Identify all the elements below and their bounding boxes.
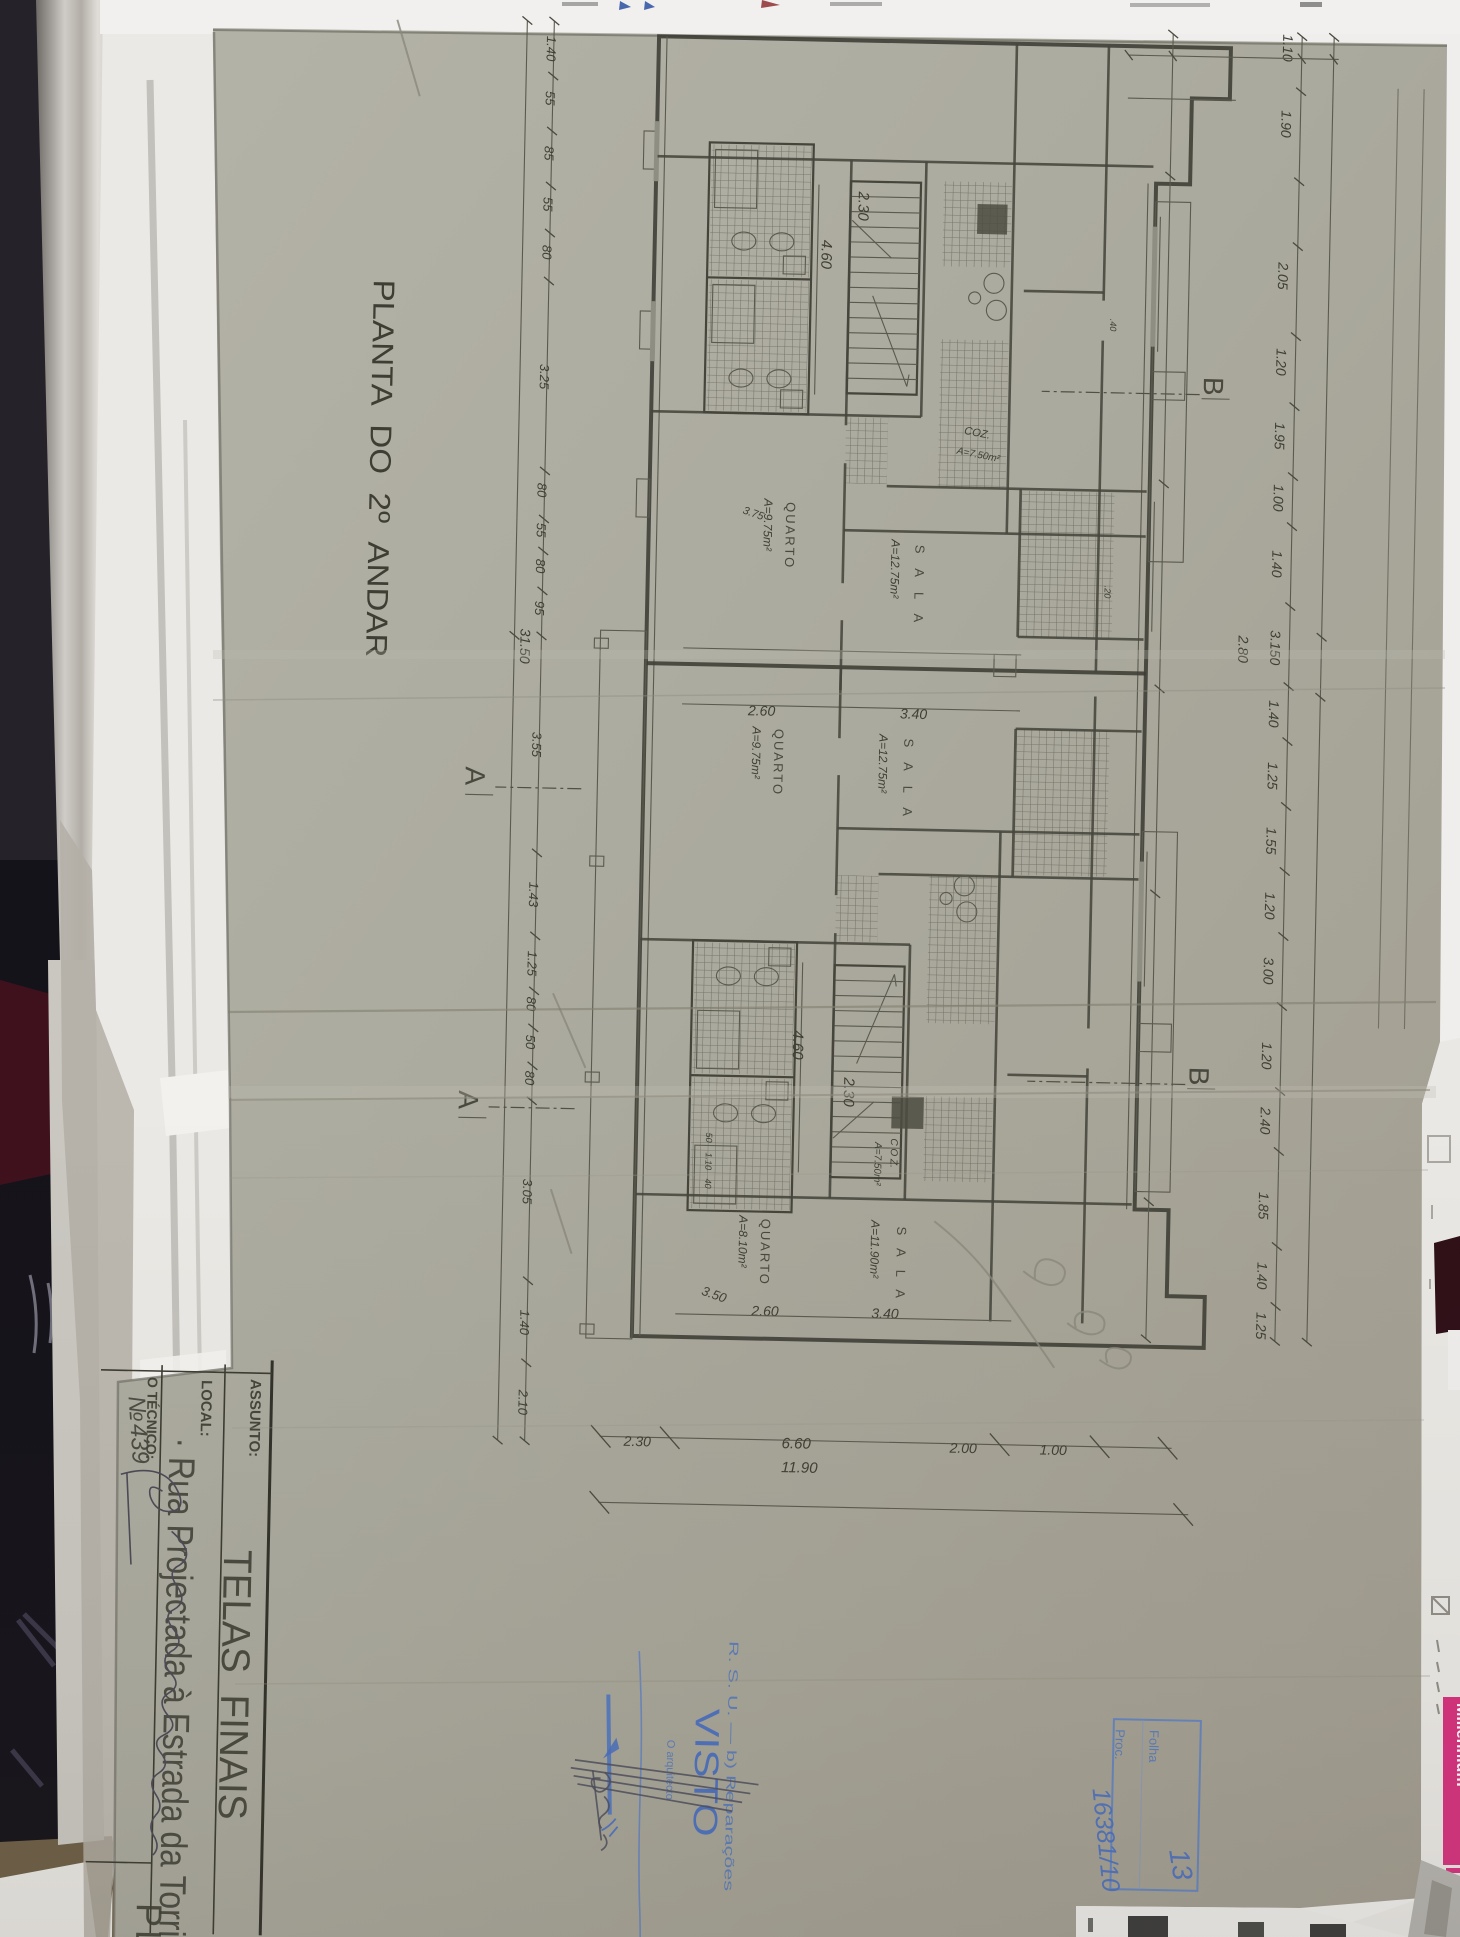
svg-text:2.60: 2.60 <box>747 702 776 719</box>
svg-text:S A L A: S A L A <box>911 545 928 629</box>
svg-text:1.00: 1.00 <box>1270 484 1287 512</box>
svg-text:.40: .40 <box>1108 319 1118 332</box>
svg-text:1.20: 1.20 <box>1259 1042 1276 1070</box>
svg-text:A: A <box>459 766 490 786</box>
svg-text:55: 55 <box>543 91 558 107</box>
svg-text:4.60: 4.60 <box>789 1030 807 1060</box>
svg-text:1.25: 1.25 <box>1264 762 1281 790</box>
svg-text:A=9.75m²: A=9.75m² <box>749 725 764 780</box>
svg-text:3.40: 3.40 <box>900 705 928 722</box>
svg-text:80: 80 <box>533 559 548 575</box>
svg-text:B: B <box>1198 377 1229 396</box>
svg-text:1.20: 1.20 <box>1262 892 1279 920</box>
svg-text:1.40: 1.40 <box>1266 700 1283 728</box>
svg-text:55: 55 <box>540 197 555 213</box>
svg-text:50: 50 <box>523 1035 538 1051</box>
svg-text:1.40: 1.40 <box>1269 550 1286 578</box>
svg-text:QUARTO: QUARTO <box>770 729 786 796</box>
svg-text:1.43: 1.43 <box>526 882 542 908</box>
svg-text:S A L A: S A L A <box>900 738 917 822</box>
svg-text:1.20: 1.20 <box>1273 348 1290 376</box>
svg-text:A=12.75m²: A=12.75m² <box>875 733 890 794</box>
svg-text:3.150: 3.150 <box>1267 630 1284 666</box>
svg-text:2.30: 2.30 <box>854 190 872 221</box>
svg-text:85: 85 <box>541 146 556 162</box>
svg-text:55: 55 <box>534 523 549 539</box>
svg-text:80: 80 <box>539 245 554 261</box>
svg-text:A=9.75m²: A=9.75m² <box>760 497 775 552</box>
svg-text:4.60: 4.60 <box>817 240 835 270</box>
svg-text:1.95: 1.95 <box>1272 422 1289 450</box>
svg-text:1.55: 1.55 <box>1263 827 1280 855</box>
svg-text:1.25: 1.25 <box>524 951 540 977</box>
svg-text:1.40: 1.40 <box>544 36 560 62</box>
svg-text:3.55: 3.55 <box>529 732 545 758</box>
svg-text:3.00: 3.00 <box>1260 957 1277 985</box>
svg-text:80: 80 <box>534 483 549 499</box>
svg-text:QUARTO: QUARTO <box>782 502 798 569</box>
svg-text:B: B <box>1183 1066 1214 1085</box>
svg-text:80: 80 <box>522 1071 537 1087</box>
svg-text:3.25: 3.25 <box>537 364 553 390</box>
svg-text:A=12.75m²: A=12.75m² <box>887 538 902 599</box>
svg-text:1.90: 1.90 <box>1278 110 1295 138</box>
svg-text:95: 95 <box>532 601 547 617</box>
svg-text:2.05: 2.05 <box>1275 261 1292 290</box>
